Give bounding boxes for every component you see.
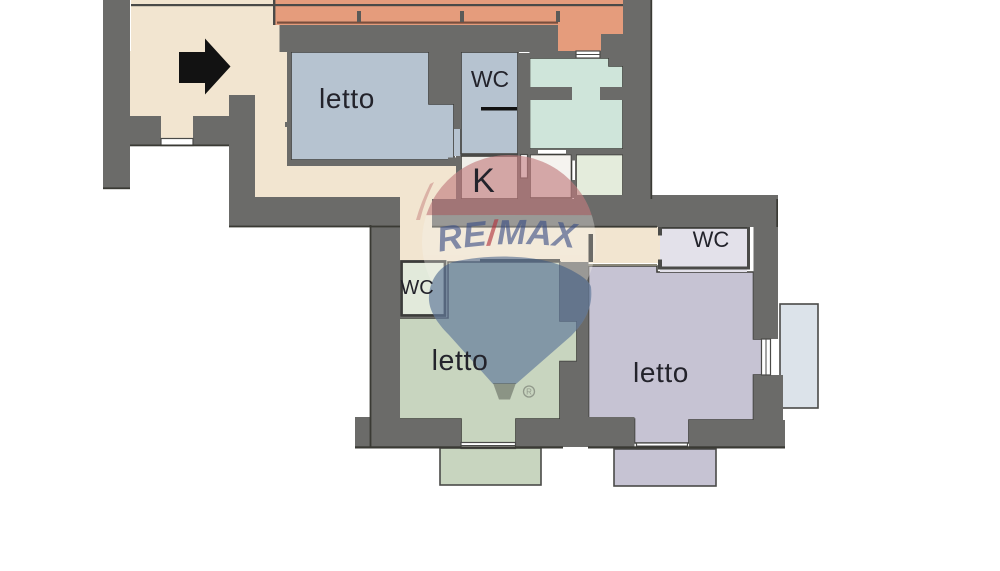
svg-text:letto: letto bbox=[432, 345, 489, 377]
svg-text:WC: WC bbox=[400, 277, 433, 299]
svg-text:WC: WC bbox=[471, 66, 509, 92]
svg-text:K: K bbox=[472, 162, 495, 200]
svg-text:WC: WC bbox=[693, 227, 730, 252]
svg-text:letto: letto bbox=[633, 357, 689, 388]
svg-text:letto: letto bbox=[319, 83, 375, 114]
svg-text:R: R bbox=[526, 388, 532, 397]
